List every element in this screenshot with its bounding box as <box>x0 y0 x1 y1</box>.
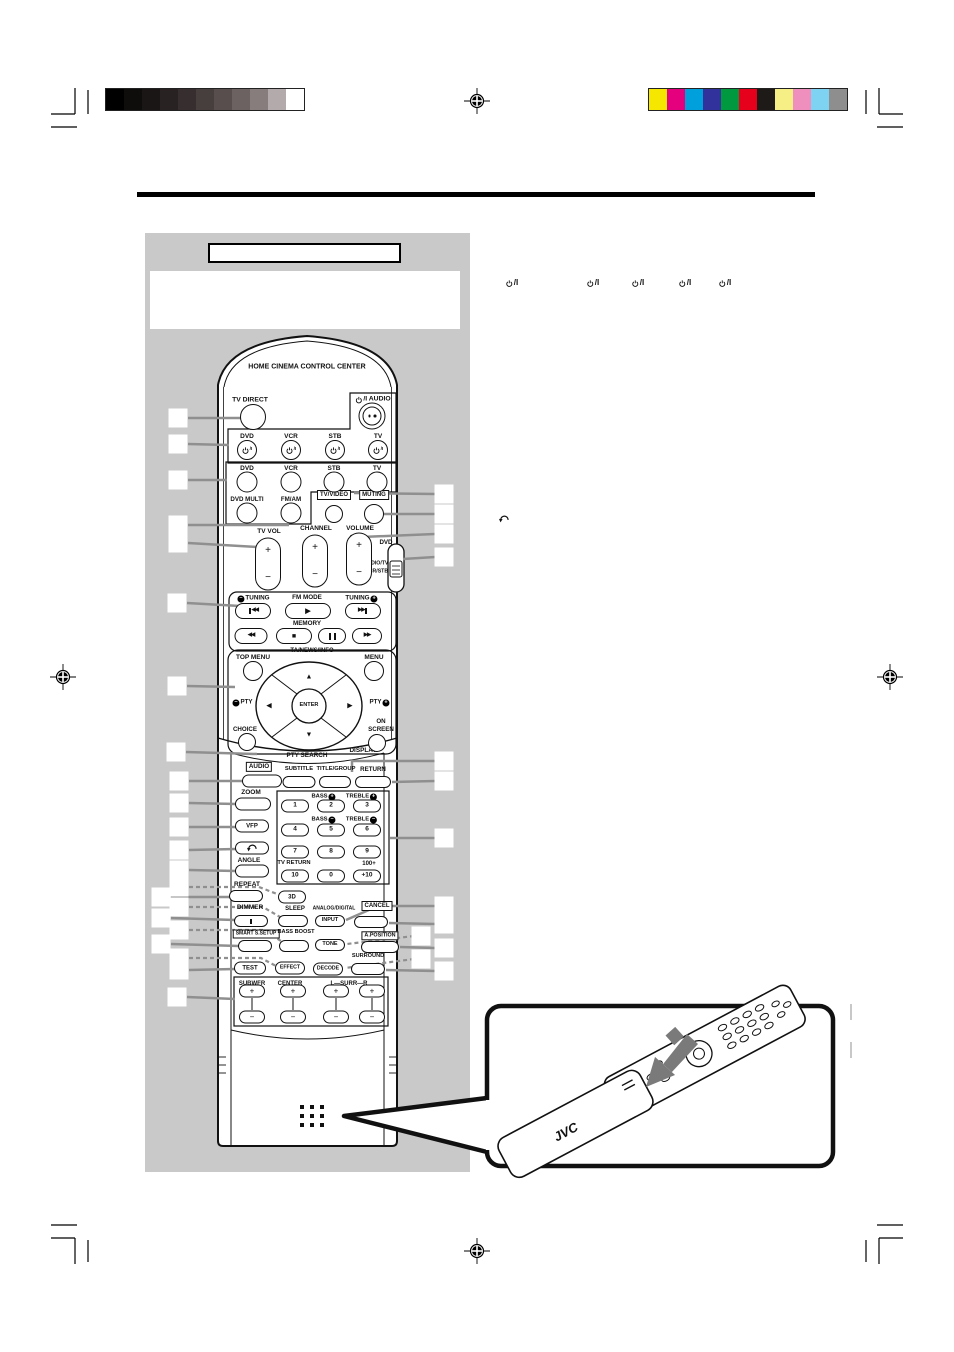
play-icon: ▶ <box>305 608 310 615</box>
ta-news-info-label: TA/NEWS/INFO <box>290 648 333 654</box>
power-symbol-2: /I <box>587 279 599 287</box>
return-symbol <box>498 515 510 524</box>
surr-r-plus-button[interactable]: + <box>359 985 385 998</box>
fm-mode-label: FM MODE <box>292 595 322 601</box>
ffwd-icon: ▶▶ <box>364 633 370 639</box>
speaker-holes <box>300 1105 324 1127</box>
fm-am-button[interactable] <box>281 503 302 524</box>
smart-setup-button[interactable] <box>238 940 272 952</box>
surr-l-minus-button[interactable]: − <box>323 1011 349 1024</box>
num-10-button[interactable]: 10 <box>281 870 309 883</box>
smart-setup-label: SMART S.SETUP <box>233 930 280 939</box>
choice-button[interactable] <box>238 733 256 751</box>
title-group-button[interactable] <box>319 776 351 788</box>
volume-label: VOLUME <box>346 526 374 533</box>
num-0-button[interactable]: 0 <box>317 870 345 883</box>
on-screen-label-line2: SCREEN <box>368 727 394 733</box>
zoom-button[interactable] <box>235 798 271 811</box>
return-arrow-icon <box>246 844 258 853</box>
power-symbol-4: /I <box>679 279 691 287</box>
skip-fwd-icon: ▶▶ <box>358 608 368 614</box>
cursor-up-button[interactable]: ▲ <box>306 674 313 681</box>
dimmer-button[interactable] <box>234 915 268 927</box>
stop-icon: ■ <box>292 633 296 640</box>
stop-button[interactable]: ■ <box>276 628 312 644</box>
pause-button[interactable] <box>318 628 346 644</box>
return-arrow-button[interactable] <box>235 842 269 855</box>
center-plus-button[interactable]: + <box>280 985 306 998</box>
pty-up-label: PTY+ <box>369 700 390 707</box>
a-position-button[interactable] <box>361 941 399 953</box>
audio-button[interactable] <box>242 775 282 788</box>
num-7-button[interactable]: 7 <box>281 846 309 859</box>
return-label: RETURN <box>360 767 386 773</box>
cursor-left-button[interactable]: ◀ <box>266 703 271 710</box>
effect-button[interactable]: EFFECT <box>275 962 305 975</box>
bass-boost-button[interactable] <box>279 940 309 952</box>
num-1-button[interactable]: 1 <box>281 800 309 813</box>
zoom-label: ZOOM <box>241 790 261 797</box>
subwfr-minus-button[interactable]: − <box>239 1011 265 1024</box>
power-icon <box>286 447 293 454</box>
cancel-label: CANCEL <box>362 901 393 911</box>
bass-down-label: BASS− <box>311 817 336 824</box>
vcr-select-button[interactable] <box>281 472 302 493</box>
a-position-label: A.POSITION <box>361 931 398 940</box>
test-button[interactable]: TEST <box>234 962 266 975</box>
enter-label: ENTER <box>300 703 319 709</box>
pause-icon <box>327 633 337 640</box>
manual-page: JVC HOME CINEMA CONTROL CENTERTV DIRECT/… <box>0 0 954 1352</box>
cursor-right-button[interactable]: ▶ <box>347 703 352 710</box>
bass-boost-label: BASS BOOST <box>278 930 315 936</box>
repeat-label: REPEAT <box>234 882 260 889</box>
power-icon <box>506 280 513 287</box>
num-5-button[interactable]: 5 <box>317 824 345 837</box>
skip-back-button[interactable]: ◀◀ <box>235 603 271 619</box>
tv-return-label: TV RETURN <box>277 861 310 867</box>
pty-search-label: PTY SEARCH <box>286 753 327 759</box>
tv-video-button[interactable] <box>325 505 343 523</box>
power-icon <box>355 397 362 404</box>
dvd-multi-button[interactable] <box>237 503 258 524</box>
num-6-button[interactable]: 6 <box>353 824 381 837</box>
audio-label: AUDIO <box>246 762 272 772</box>
power-icon <box>330 447 337 454</box>
channel-label: CHANNEL <box>300 526 332 533</box>
tv-direct-button[interactable] <box>240 404 266 430</box>
tv-power-button[interactable]: /I <box>368 440 388 460</box>
num-9-button[interactable]: 9 <box>353 846 381 859</box>
subtitle-button[interactable] <box>283 776 316 788</box>
switch-dvd-label: DVD <box>379 540 392 546</box>
subwfr-plus-button[interactable]: + <box>239 985 265 998</box>
on-screen-label-line1: ON <box>376 719 385 725</box>
channel-plus[interactable]: + <box>312 543 318 553</box>
num-3-button[interactable]: 3 <box>353 800 381 813</box>
plus-disc-icon: + <box>383 700 390 707</box>
num-plus10-button[interactable]: +10 <box>353 870 381 883</box>
fast-forward-button[interactable]: ▶▶ <box>352 628 382 644</box>
num-8-button[interactable]: 8 <box>317 846 345 859</box>
power-symbol-5: /I <box>719 279 731 287</box>
memory-label: MEMORY <box>293 621 321 627</box>
illustration-overlay: JVC <box>0 0 954 1352</box>
repeat-button[interactable] <box>229 890 263 902</box>
power-symbol-1: /I <box>506 279 518 287</box>
minus-disc-icon: − <box>370 817 377 824</box>
cancel-button[interactable] <box>354 916 388 928</box>
surround-button[interactable] <box>351 963 385 975</box>
remote-header: HOME CINEMA CONTROL CENTER <box>248 364 365 371</box>
power-symbol-3: /I <box>632 279 644 287</box>
muting-button[interactable] <box>364 504 384 524</box>
decode-button[interactable]: DECODE <box>313 963 343 976</box>
audio-power-icon <box>363 407 382 426</box>
inset-box: JVC <box>344 982 833 1181</box>
input-button[interactable]: INPUT <box>315 915 345 927</box>
dim-icon <box>250 919 252 924</box>
minus-disc-icon: − <box>237 596 244 603</box>
power-icon <box>587 280 594 287</box>
top-menu-button[interactable] <box>243 661 263 681</box>
audio-power-button[interactable] <box>359 403 386 430</box>
menu-button[interactable] <box>364 661 384 681</box>
surround-label: SURROUND <box>352 954 384 960</box>
vcr-power-button[interactable]: /I <box>281 440 301 460</box>
power-icon <box>632 280 639 287</box>
return-button[interactable] <box>355 776 391 788</box>
power-icon <box>242 447 249 454</box>
num-2-button[interactable]: 2 <box>317 800 345 813</box>
power-icon <box>373 447 380 454</box>
tv-vol-plus[interactable]: + <box>265 546 271 556</box>
minus-disc-icon: − <box>329 817 336 824</box>
surr-r-minus-button[interactable]: − <box>359 1011 385 1024</box>
plus-disc-icon: + <box>371 596 378 603</box>
subtitle-label: SUBTITLE <box>285 767 313 773</box>
skip-forward-button[interactable]: ▶▶ <box>345 603 381 619</box>
tuning-up-label: TUNING+ <box>345 596 378 603</box>
tuning-down-label: −TUNING <box>236 596 269 603</box>
num-4-button[interactable]: 4 <box>281 824 309 837</box>
skip-back-icon: ◀◀ <box>248 608 258 614</box>
power-icon <box>719 280 726 287</box>
pty-down-label: −PTY <box>231 700 252 707</box>
angle-button[interactable] <box>235 865 269 878</box>
sleep-label: SLEEP <box>285 906 305 912</box>
vfp-button[interactable]: VFP <box>235 820 269 833</box>
tv-vol-label: TV VOL <box>257 529 280 536</box>
stb-select-button[interactable] <box>324 472 345 493</box>
cursor-down-button[interactable]: ▼ <box>306 732 313 739</box>
volume-plus[interactable]: + <box>356 541 362 551</box>
channel-minus[interactable]: − <box>312 570 318 580</box>
tv-select-button[interactable] <box>367 472 388 493</box>
rewind-button[interactable]: ◀◀ <box>235 628 268 644</box>
tv-vol-minus[interactable]: − <box>265 573 271 583</box>
hundred-plus-label: 100+ <box>362 861 376 867</box>
surr-l-plus-button[interactable]: + <box>323 985 349 998</box>
title-group-label: TITLE/GROUP <box>317 767 356 773</box>
3d-button[interactable]: 3D <box>278 891 306 904</box>
dimmer-label: DIMMER <box>237 905 263 912</box>
return-arrow-icon <box>498 515 510 524</box>
minus-disc-icon: − <box>232 700 239 707</box>
rew-icon: ◀◀ <box>248 633 254 639</box>
stb-power-button[interactable]: /I <box>325 440 345 460</box>
angle-label: ANGLE <box>238 858 261 865</box>
treble-down-label: TREBLE− <box>346 817 378 824</box>
center-minus-button[interactable]: − <box>280 1011 306 1024</box>
dvd-select-button[interactable] <box>237 472 258 493</box>
power-icon <box>679 280 686 287</box>
dvd-power-button[interactable]: /I <box>237 440 257 460</box>
volume-minus[interactable]: − <box>356 568 362 578</box>
mode-slide-switch[interactable] <box>388 544 404 592</box>
on-screen-button[interactable] <box>368 734 386 752</box>
sleep-button[interactable] <box>278 915 308 927</box>
analog-digital-label: ANALOG/DIGITAL <box>313 907 356 912</box>
play-button[interactable]: ▶ <box>285 603 331 619</box>
tone-button[interactable]: TONE <box>315 939 345 951</box>
